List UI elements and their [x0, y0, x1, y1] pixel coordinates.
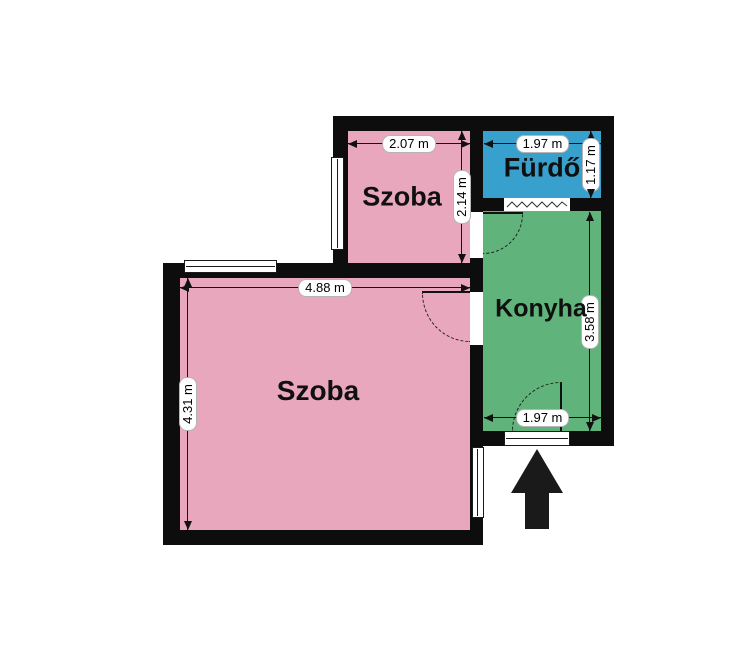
- dim-label: 1.97 m: [516, 135, 570, 153]
- vent-window-furdo: [504, 198, 570, 211]
- room-label-szoba-small: Szoba: [362, 182, 442, 213]
- dim-label: 4.31 m: [179, 377, 197, 431]
- dim-label: 2.14 m: [453, 170, 471, 224]
- dim-szoba-large-width: 4.88 m: [180, 287, 470, 288]
- wall-large-room-bottom: [163, 530, 483, 545]
- dim-label: 2.07 m: [382, 135, 436, 153]
- entrance-arrow-shaft: [525, 491, 549, 529]
- dim-szoba-small-height: 2.14 m: [461, 131, 462, 263]
- dim-label: 4.88 m: [298, 279, 352, 297]
- entrance-door-threshold: [504, 431, 570, 446]
- dim-konyha-width: 1.97 m: [484, 417, 601, 418]
- window-small-room-left: [331, 157, 344, 250]
- room-label-furdo: Fürdő: [504, 153, 580, 184]
- wall-right: [601, 116, 614, 446]
- dim-label: 1.97 m: [516, 409, 570, 427]
- entrance-arrow-icon: [511, 449, 563, 493]
- room-label-konyha: Konyha: [495, 295, 587, 324]
- door-opening-szoba-small-konyha: [470, 212, 483, 258]
- floorplan-canvas: 2.07 m 2.14 m 1.97 m 1.17 m 4.88 m 4.31 …: [0, 0, 730, 647]
- wall-large-room-left: [163, 263, 180, 545]
- dim-furdo-height: 1.17 m: [590, 131, 591, 198]
- door-opening-szoba-large-konyha: [470, 292, 483, 345]
- window-large-room-right: [472, 447, 484, 518]
- dim-szoba-small-width: 2.07 m: [348, 143, 470, 144]
- window-large-room-top: [184, 260, 277, 273]
- dim-label: 1.17 m: [582, 138, 600, 192]
- vent-zigzag-icon: [505, 199, 569, 210]
- dim-konyha-height: 3.58 m: [589, 212, 590, 431]
- room-label-szoba-large: Szoba: [277, 375, 359, 407]
- dim-szoba-large-height: 4.31 m: [187, 278, 188, 530]
